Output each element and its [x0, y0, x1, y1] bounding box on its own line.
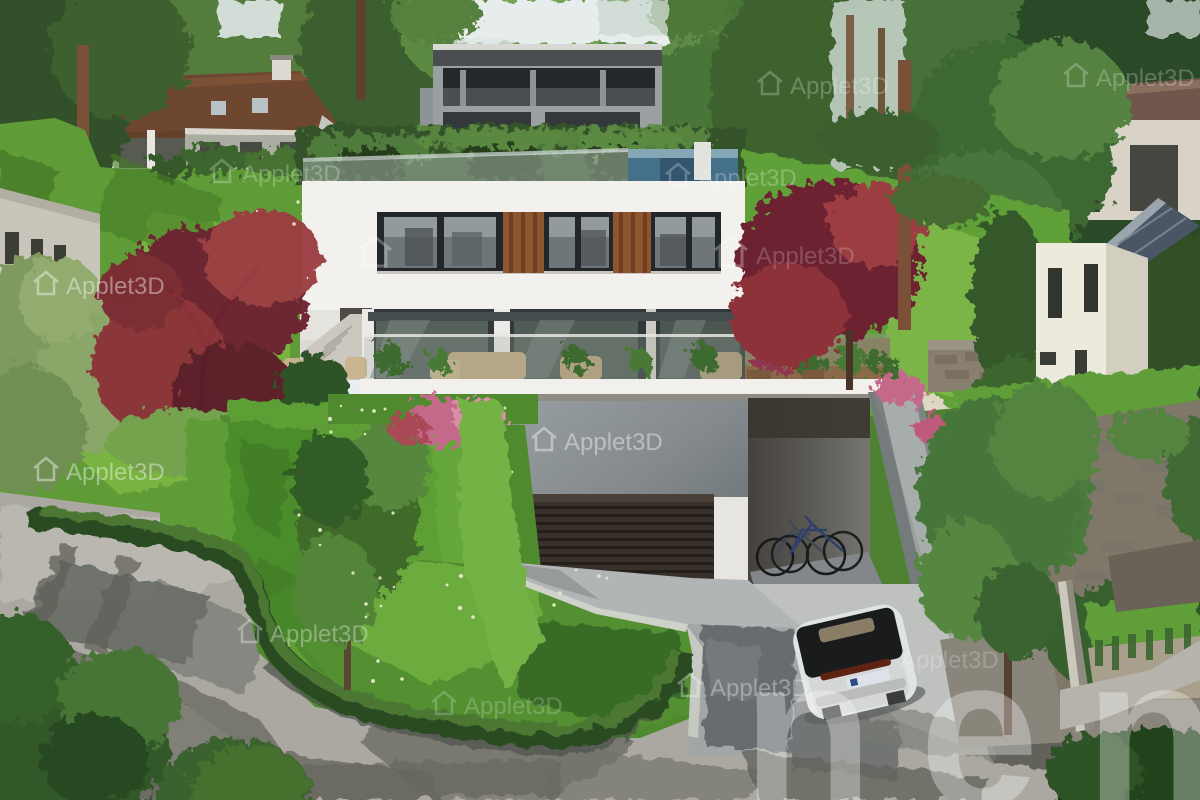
svg-text:nen: nen: [742, 611, 1200, 800]
svg-text:Applet3D: Applet3D: [756, 243, 855, 270]
svg-text:Applet3D: Applet3D: [464, 693, 563, 720]
svg-text:Applet3D: Applet3D: [790, 73, 889, 100]
svg-text:Applet3D: Applet3D: [242, 161, 341, 188]
svg-text:Applet3D: Applet3D: [1096, 65, 1195, 92]
svg-text:Applet3D: Applet3D: [900, 647, 999, 674]
svg-text:Applet3D: Applet3D: [270, 621, 369, 648]
svg-text:Applet3D: Applet3D: [698, 165, 797, 192]
svg-text:Applet3D: Applet3D: [710, 675, 809, 702]
svg-text:Applet3D: Applet3D: [564, 429, 663, 456]
svg-text:Applet3D: Applet3D: [66, 273, 165, 300]
svg-text:Applet3D: Applet3D: [66, 459, 165, 486]
